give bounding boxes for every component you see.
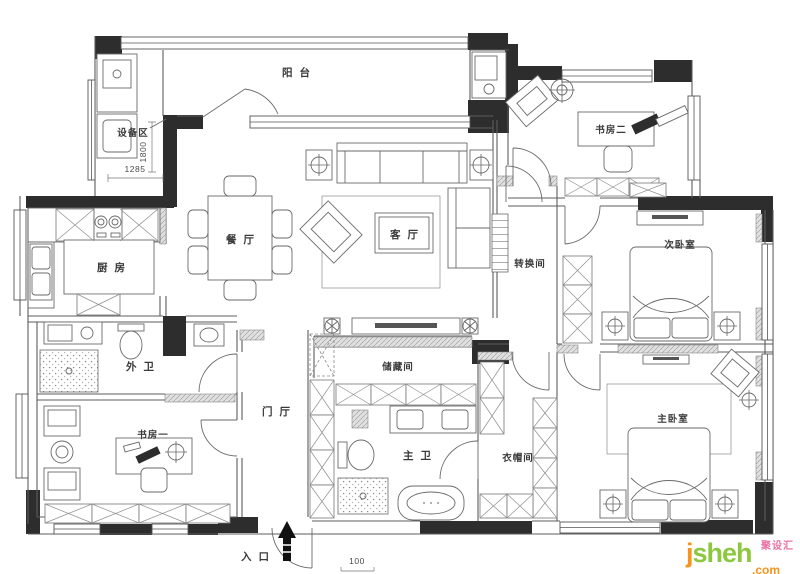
master-bedroom-door-arc (564, 354, 600, 390)
sofa (337, 143, 467, 183)
balcony-door-arc (203, 89, 278, 117)
kitchen-sink (30, 244, 52, 300)
shoe-cabinet (492, 214, 508, 272)
floor-plan-drawing: 1285 1800 100 入 口 阳 台 设备区 厨 房 餐 厅 客 厅 书房… (0, 0, 800, 574)
tv (375, 323, 437, 328)
dim-1800: 1800 (138, 142, 148, 163)
shower-floor (338, 478, 388, 514)
room-bedroom-two (563, 211, 740, 343)
utility-niche (472, 52, 506, 98)
room-label-kitchen: 厨 房 (97, 261, 127, 274)
entrance-arrow-icon (278, 521, 296, 561)
transition-door-arc (513, 148, 551, 186)
room-label-transition: 转换间 (514, 258, 546, 270)
shower-floor (40, 350, 98, 392)
room-guest-bath (40, 322, 224, 392)
pillow (672, 318, 708, 338)
room-label-foyer: 门 厅 (262, 405, 292, 418)
pillow (632, 500, 668, 520)
pillow (670, 500, 706, 520)
cloakroom-door-arc (512, 352, 549, 390)
room-label-equipment-area: 设备区 (117, 127, 149, 139)
desk-chair (141, 468, 167, 492)
room-label-guest-bath: 外 卫 (125, 360, 156, 373)
room-master-bath (338, 406, 476, 520)
tv (653, 357, 679, 360)
desk-chair (604, 146, 632, 172)
room-label-living: 客 厅 (389, 228, 420, 241)
room-label-dining: 餐 厅 (225, 233, 256, 246)
pillow (634, 318, 670, 338)
guest-bath-door-arc (199, 354, 237, 392)
basin (194, 324, 224, 346)
armchair (44, 468, 80, 500)
floor-plan-page: 1285 1800 100 入 口 阳 台 设备区 厨 房 餐 厅 客 厅 书房… (0, 0, 800, 574)
scale-marker: 100 (349, 556, 365, 566)
plant (324, 318, 340, 334)
watermark-chinese: 聚设汇 (761, 537, 794, 552)
plant (462, 318, 478, 334)
room-equipment-area (97, 54, 166, 158)
room-label-master-bath: 主 卫 (403, 449, 433, 462)
armchair (44, 406, 80, 436)
round-table (51, 441, 73, 463)
toilet (120, 331, 142, 359)
room-label-balcony: 阳 台 (282, 66, 312, 79)
room-label-bedroom-two: 次卧室 (664, 239, 696, 251)
bedroom-two-door-arc (565, 206, 600, 244)
toilet-tank (338, 442, 347, 468)
entrance-label: 入 口 (241, 551, 271, 563)
toilet (348, 440, 374, 470)
armchair (711, 349, 759, 397)
room-label-study-two: 书房二 (595, 124, 627, 136)
room-label-storage: 储藏间 (382, 361, 414, 373)
room-cloakroom (480, 362, 557, 518)
room-kitchen (28, 208, 160, 315)
watermark-logo: 聚设汇 jsheh .com (686, 540, 794, 572)
room-study-one (44, 406, 230, 523)
master-bath-door-arc (440, 441, 478, 479)
room-label-master-bedroom: 主卧室 (657, 413, 689, 425)
room-label-cloakroom: 衣帽间 (502, 452, 534, 464)
room-storage (336, 384, 476, 405)
room-master-bedroom (600, 349, 759, 522)
washer (352, 410, 368, 428)
toilet-tank (118, 324, 144, 331)
armchair (300, 201, 362, 263)
dim-1285: 1285 (125, 164, 146, 174)
tv (652, 215, 688, 219)
study-one-door-arc (201, 420, 237, 456)
room-label-study-one: 书房一 (137, 429, 169, 441)
